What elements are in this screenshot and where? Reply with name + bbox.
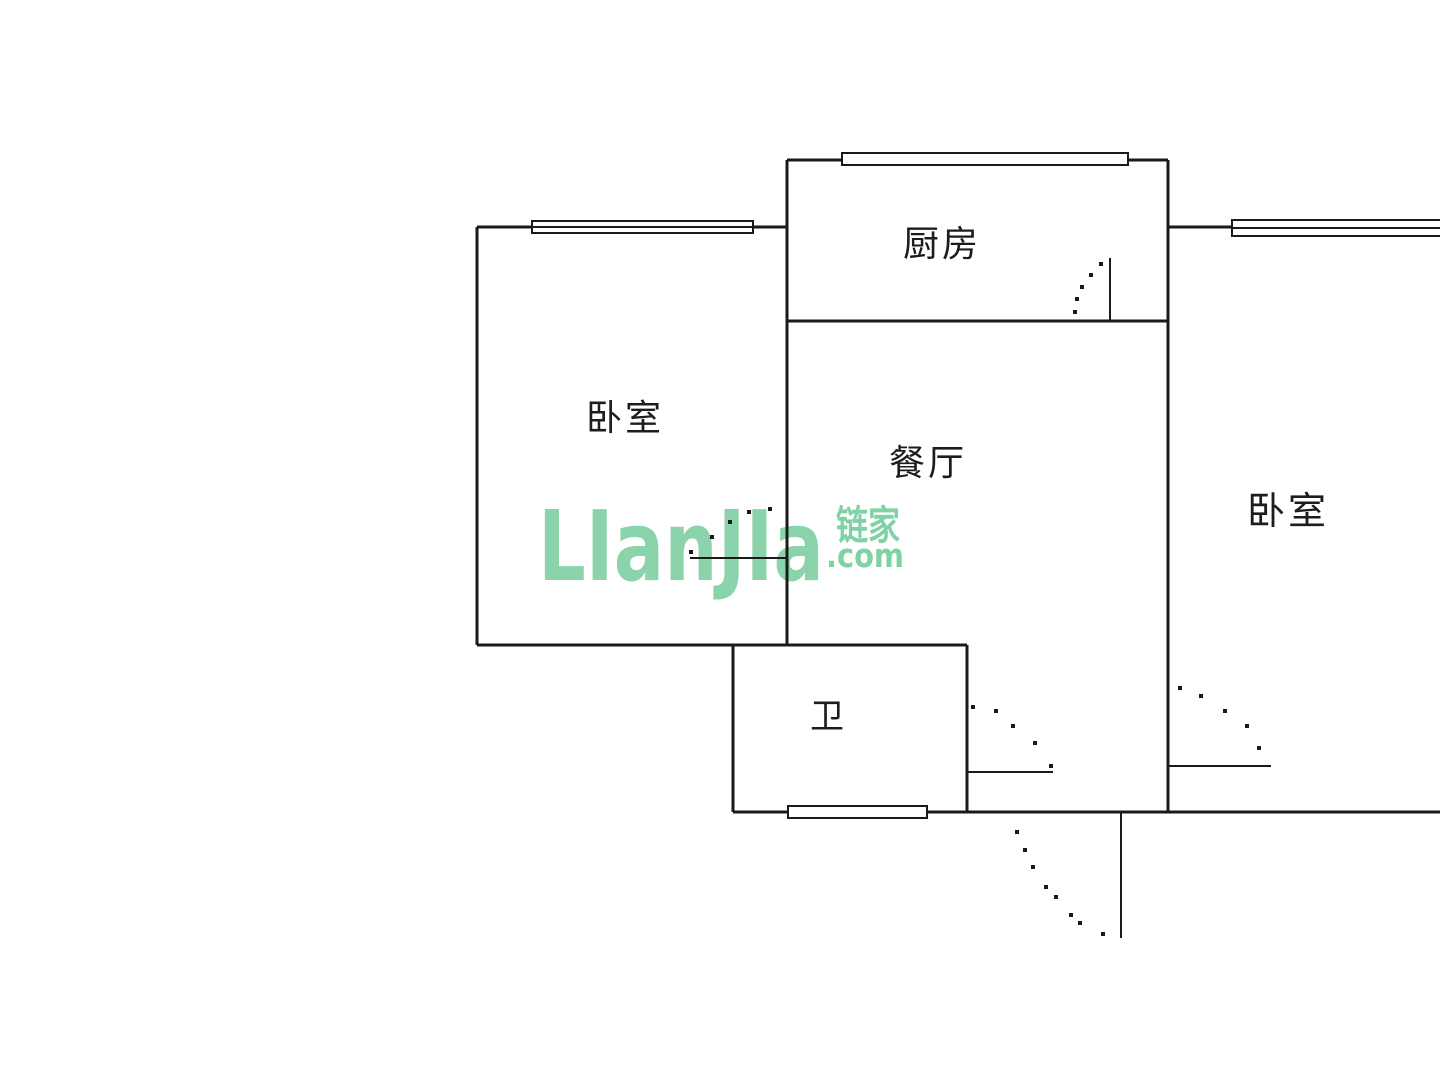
bathroom-door-swing-dot xyxy=(994,709,998,713)
bathroom-door-swing-dot xyxy=(971,705,975,709)
kitchen-door-swing-dot xyxy=(1073,310,1077,314)
floor-plan-page: LIanJIa 链家 .com 厨房 卧室 餐厅 卧室 卫 xyxy=(0,0,1440,1080)
room-label-bathroom: 卫 xyxy=(810,699,844,736)
lianjia-watermark: LIanJIa 链家 .com xyxy=(538,490,904,603)
bedroom-left-door-swing-dot xyxy=(747,510,751,514)
lianjia-logo-text: LIanJIa xyxy=(538,490,824,603)
entry-door-swing-dot xyxy=(1023,848,1027,852)
entry-door-swing-dot xyxy=(1101,932,1105,936)
bedroom-left-door-swing-dot xyxy=(689,550,693,554)
entry-door-swing-dot xyxy=(1044,885,1048,889)
bathroom-door-swing-dot xyxy=(1033,741,1037,745)
entry-door-swing-dot xyxy=(1069,913,1073,917)
bedroom-right-door-swing-dot xyxy=(1223,709,1227,713)
kitchen-door-swing-dot xyxy=(1089,273,1093,277)
entry-door-swing-dot xyxy=(1015,830,1019,834)
room-label-kitchen: 厨房 xyxy=(903,224,981,264)
bedroom-right-door-swing-dot xyxy=(1178,686,1182,690)
entry-door-swing-dot xyxy=(1054,895,1058,899)
bedroom-right-door-swing-dot xyxy=(1199,694,1203,698)
room-label-dining: 餐厅 xyxy=(889,443,967,483)
room-label-bedroom-right: 卧室 xyxy=(1247,492,1329,534)
kitchen-door-swing-dot xyxy=(1099,262,1103,266)
lianjia-com-text: .com xyxy=(826,536,904,575)
bathroom-door-swing-dot xyxy=(1011,724,1015,728)
bathroom-window xyxy=(788,806,927,818)
room-label-bedroom-left: 卧室 xyxy=(586,398,664,438)
floor-plan-drawing: LIanJIa 链家 .com xyxy=(0,0,1440,1080)
bedroom-right-door-swing-dot xyxy=(1257,746,1261,750)
kitchen-door-swing-dot xyxy=(1075,297,1079,301)
kitchen-door-swing-dot xyxy=(1080,285,1084,289)
kitchen-window xyxy=(842,153,1128,165)
bathroom-door-swing-dot xyxy=(1049,764,1053,768)
bedroom-left-door-swing-dot xyxy=(728,520,732,524)
entry-door-swing-dot xyxy=(1078,921,1082,925)
windows-layer xyxy=(532,153,1440,818)
entry-door-swing-dot xyxy=(1031,865,1035,869)
bedroom-left-door-swing-dot xyxy=(710,535,714,539)
bedroom-left-door-swing-dot xyxy=(768,507,772,511)
bedroom-right-door-swing-dot xyxy=(1245,724,1249,728)
